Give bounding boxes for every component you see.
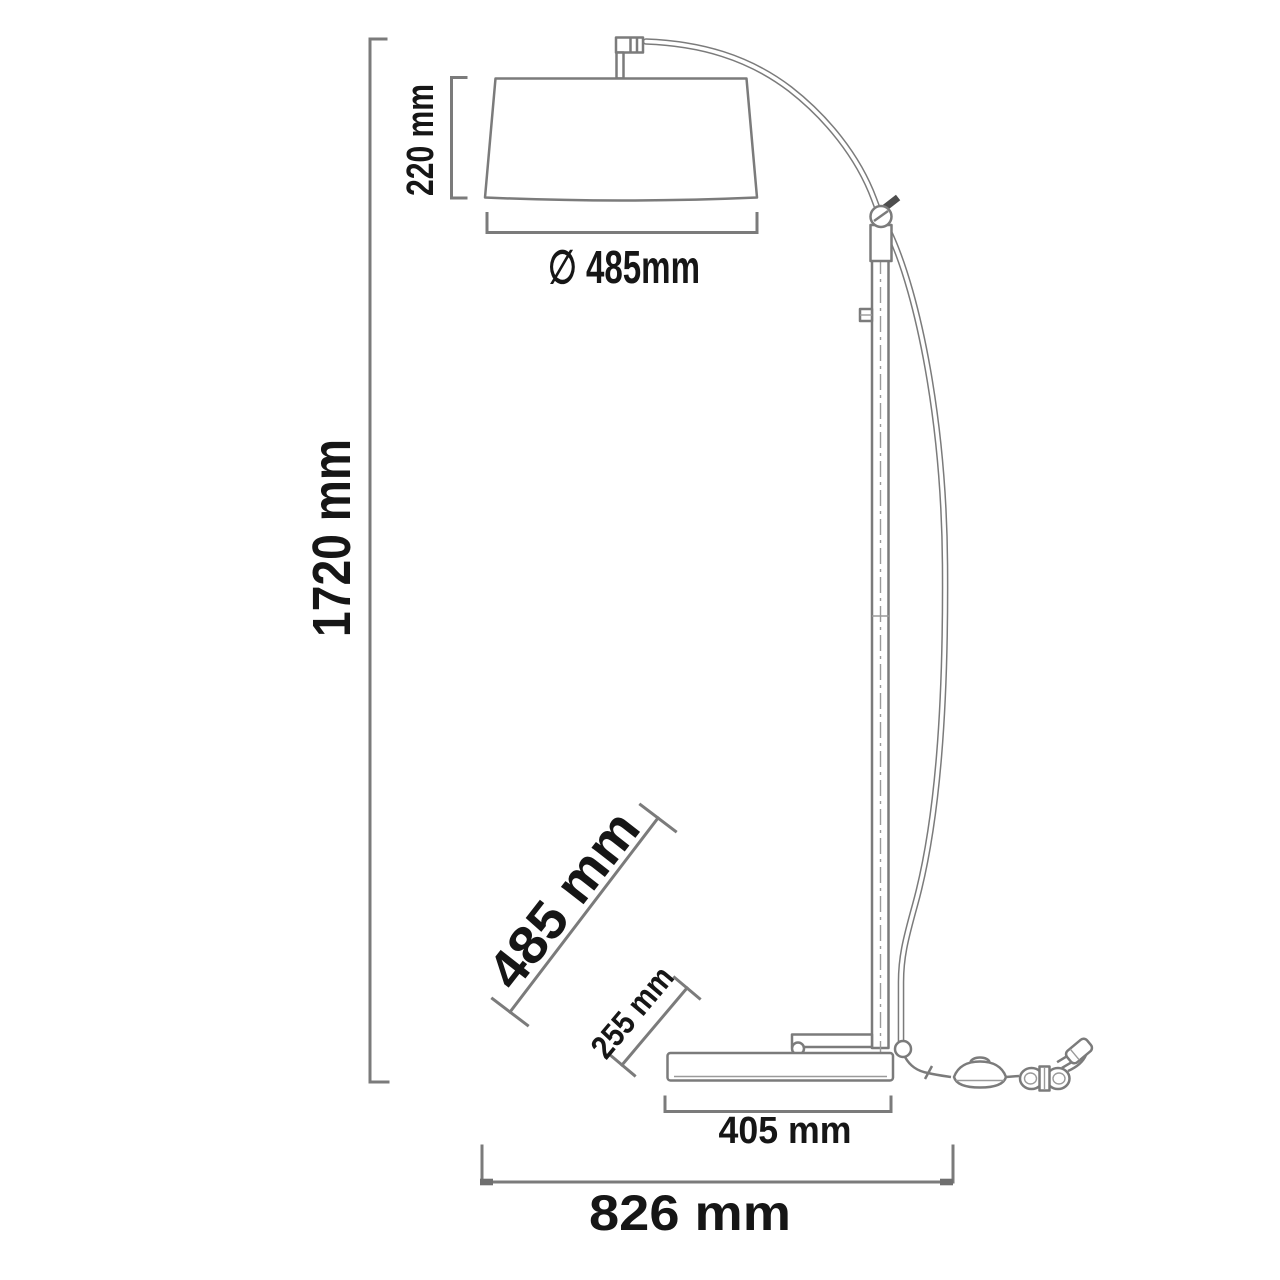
dimension-overall-depth: 826 mm xyxy=(480,1146,953,1241)
dimension-shade-diameter: ∅ 485mm xyxy=(487,214,757,294)
base-length-label: 405 mm xyxy=(719,1110,852,1152)
arm-reach-label: 485 mm xyxy=(476,800,651,1001)
arc-end-ball xyxy=(895,1041,911,1057)
overall-depth-label: 826 mm xyxy=(589,1185,791,1241)
shade-stem xyxy=(617,53,624,79)
shade-diameter-label: ∅ 485mm xyxy=(548,241,700,293)
joint-collar xyxy=(871,225,892,261)
cord-coil xyxy=(1020,1067,1070,1091)
lamp-base xyxy=(668,1053,894,1081)
foot-switch xyxy=(954,1058,1006,1088)
lower-arc-tube xyxy=(890,234,945,1043)
base-foot-bracket xyxy=(792,1035,872,1055)
power-cord xyxy=(905,1037,1094,1091)
dimension-drawing-canvas: 1720 mm 220 mm ∅ 485mm 485 mm 255 mm 405… xyxy=(0,0,1280,1280)
vertical-pole xyxy=(860,229,889,1054)
dimension-shade-height: 220 mm xyxy=(400,78,466,199)
dimension-overall-height: 1720 mm xyxy=(302,39,388,1082)
lamp-shade xyxy=(485,79,757,201)
overall-height-label: 1720 mm xyxy=(302,439,362,637)
shade-height-label: 220 mm xyxy=(400,84,442,196)
dimension-base-length: 405 mm xyxy=(665,1097,891,1152)
pole-adjust-knob xyxy=(860,309,872,321)
lamp-technical-drawing: 1720 mm 220 mm ∅ 485mm 485 mm 255 mm 405… xyxy=(0,0,1280,1280)
shade-hanger-fitting xyxy=(616,38,643,79)
